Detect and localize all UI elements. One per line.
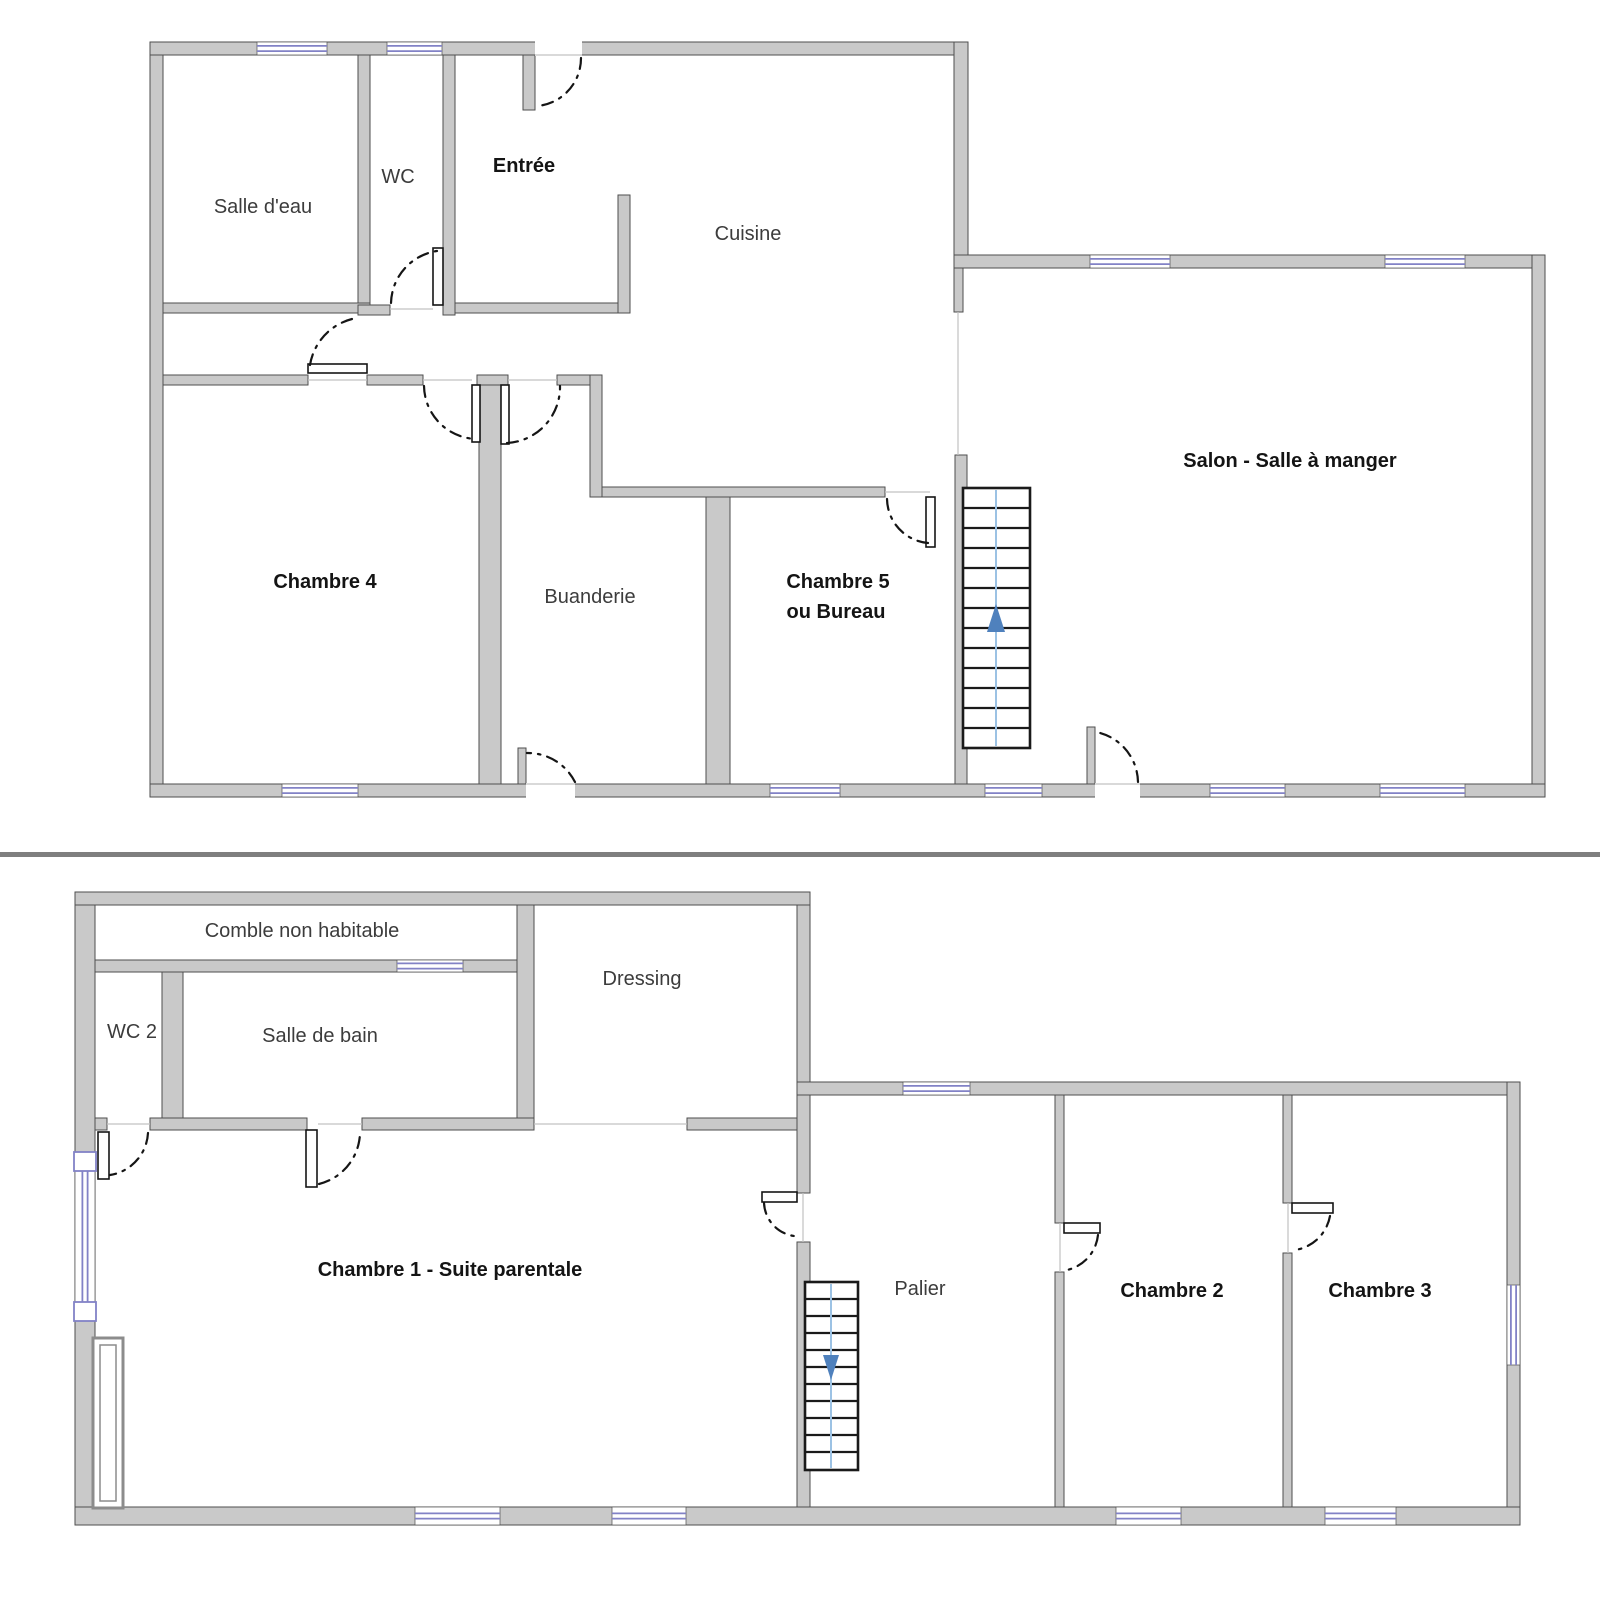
window-gap xyxy=(770,784,840,797)
window-gap xyxy=(1380,784,1465,797)
wall xyxy=(75,892,810,905)
window-gap xyxy=(1385,255,1465,268)
door-swing-arc xyxy=(537,58,581,106)
floor-divider-line xyxy=(0,852,1600,857)
door-leaf xyxy=(472,385,480,442)
wall xyxy=(150,42,163,797)
staircase xyxy=(805,1282,858,1470)
floor-plan-canvas: Salle d'eauWCEntréeCuisineChambre 4Buand… xyxy=(0,0,1600,1600)
door-swing-arc xyxy=(424,386,476,439)
wall xyxy=(163,303,370,313)
wall xyxy=(95,960,534,972)
door-opening xyxy=(535,41,582,56)
staircase xyxy=(963,488,1030,748)
window-gap xyxy=(387,42,442,55)
wall xyxy=(95,1118,107,1130)
wall xyxy=(1087,727,1095,784)
window-end-cap xyxy=(74,1152,96,1171)
room-label-chambre-3: Chambre 3 xyxy=(1328,1280,1431,1302)
wall xyxy=(797,1095,810,1193)
wall xyxy=(358,305,390,315)
room-label-ou-bureau: ou Bureau xyxy=(787,601,886,623)
window-gap xyxy=(612,1507,686,1525)
window-gap xyxy=(903,1082,970,1095)
window-gap xyxy=(415,1507,500,1525)
room-label-wc-2: WC 2 xyxy=(107,1021,157,1043)
window xyxy=(1090,255,1170,268)
door-swing-arc xyxy=(391,251,437,303)
wall xyxy=(358,55,370,305)
wall xyxy=(162,972,183,1118)
window xyxy=(612,1507,686,1525)
window-gap xyxy=(282,784,358,797)
room-label-chambre-2: Chambre 2 xyxy=(1120,1280,1223,1302)
door-swing-arc xyxy=(527,753,575,782)
window xyxy=(1325,1507,1396,1525)
window-gap xyxy=(1090,255,1170,268)
door-swing-arc xyxy=(110,1133,148,1175)
duct-outer xyxy=(93,1338,123,1508)
window xyxy=(770,784,840,797)
door-leaf xyxy=(1064,1223,1100,1233)
room-label-entree: Entrée xyxy=(493,155,555,177)
wall xyxy=(954,42,968,268)
room-label-salle-deau: Salle d'eau xyxy=(214,196,312,218)
door-leaf xyxy=(926,497,935,547)
floor-plan-page: Salle d'eauWCEntréeCuisineChambre 4Buand… xyxy=(0,0,1600,1600)
door-leaf xyxy=(98,1132,109,1179)
window-gap xyxy=(1507,1285,1520,1365)
wall xyxy=(150,784,1545,797)
duct-block xyxy=(93,1338,123,1508)
upper-floor: Comble non habitableWC 2Salle de bainDre… xyxy=(74,892,1520,1525)
wall xyxy=(362,1118,534,1130)
wall xyxy=(590,375,602,497)
window-end-cap xyxy=(74,1302,96,1321)
wall xyxy=(602,487,885,497)
window xyxy=(1210,784,1285,797)
wall xyxy=(443,55,455,315)
wall xyxy=(1283,1253,1292,1507)
wall xyxy=(1055,1272,1064,1507)
wall xyxy=(687,1118,797,1130)
wall xyxy=(954,268,963,312)
wall xyxy=(523,55,535,110)
wall xyxy=(75,1507,1520,1525)
room-label-palier: Palier xyxy=(894,1278,945,1300)
window xyxy=(1380,784,1465,797)
door-swing-arc xyxy=(507,386,560,443)
door-swing-arc xyxy=(1096,732,1138,782)
window xyxy=(1507,1285,1520,1365)
window-gap xyxy=(1116,1507,1181,1525)
door-leaf xyxy=(762,1192,797,1202)
window xyxy=(903,1082,970,1095)
room-label-comble-non-habitable: Comble non habitable xyxy=(205,920,400,942)
window-gap xyxy=(257,42,327,55)
window-gap xyxy=(1325,1507,1396,1525)
room-label-cuisine: Cuisine xyxy=(715,223,782,245)
door-opening xyxy=(1095,783,1140,798)
wall xyxy=(1055,1095,1064,1223)
ground-floor: Salle d'eauWCEntréeCuisineChambre 4Buand… xyxy=(150,41,1545,798)
wall xyxy=(477,375,508,385)
wall xyxy=(618,195,630,313)
room-label-wc: WC xyxy=(381,166,414,188)
wall xyxy=(517,905,534,1130)
room-label-chambre-1-suite-parentale: Chambre 1 - Suite parentale xyxy=(318,1259,583,1281)
window xyxy=(282,784,358,797)
door-swing-arc xyxy=(1295,1216,1330,1250)
window xyxy=(257,42,327,55)
window-gap xyxy=(1210,784,1285,797)
wall xyxy=(479,385,501,784)
wall xyxy=(1283,1095,1292,1203)
window xyxy=(387,42,442,55)
wall xyxy=(797,905,810,1095)
window-gap xyxy=(985,784,1042,797)
door-swing-arc xyxy=(1067,1235,1098,1270)
wall xyxy=(367,375,423,385)
room-label-dressing: Dressing xyxy=(603,968,682,990)
room-label-salon-salle-a-manger: Salon - Salle à manger xyxy=(1183,450,1397,472)
door-swing-arc xyxy=(310,319,352,365)
room-label-buanderie: Buanderie xyxy=(544,586,635,608)
window xyxy=(415,1507,500,1525)
window-gap xyxy=(75,1170,95,1303)
wall xyxy=(1532,255,1545,797)
door-leaf xyxy=(1292,1203,1333,1213)
window-gap xyxy=(397,960,463,972)
room-label-chambre-4: Chambre 4 xyxy=(273,571,377,593)
window xyxy=(397,960,463,972)
window xyxy=(985,784,1042,797)
door-leaf xyxy=(308,364,367,373)
door-leaf xyxy=(306,1130,317,1187)
window xyxy=(1385,255,1465,268)
door-leaf xyxy=(433,248,443,305)
wall xyxy=(163,375,308,385)
room-label-salle-de-bain: Salle de bain xyxy=(262,1025,378,1047)
door-swing-arc xyxy=(319,1133,360,1184)
window xyxy=(1116,1507,1181,1525)
door-swing-arc xyxy=(887,499,928,543)
wall xyxy=(706,497,730,784)
door-swing-arc xyxy=(764,1203,794,1236)
door-opening xyxy=(526,783,575,798)
wall xyxy=(150,1118,307,1130)
door-leaf xyxy=(501,385,509,444)
wall xyxy=(518,748,526,784)
wall xyxy=(455,303,630,313)
window xyxy=(75,1170,95,1303)
room-label-chambre-5: Chambre 5 xyxy=(786,571,889,593)
